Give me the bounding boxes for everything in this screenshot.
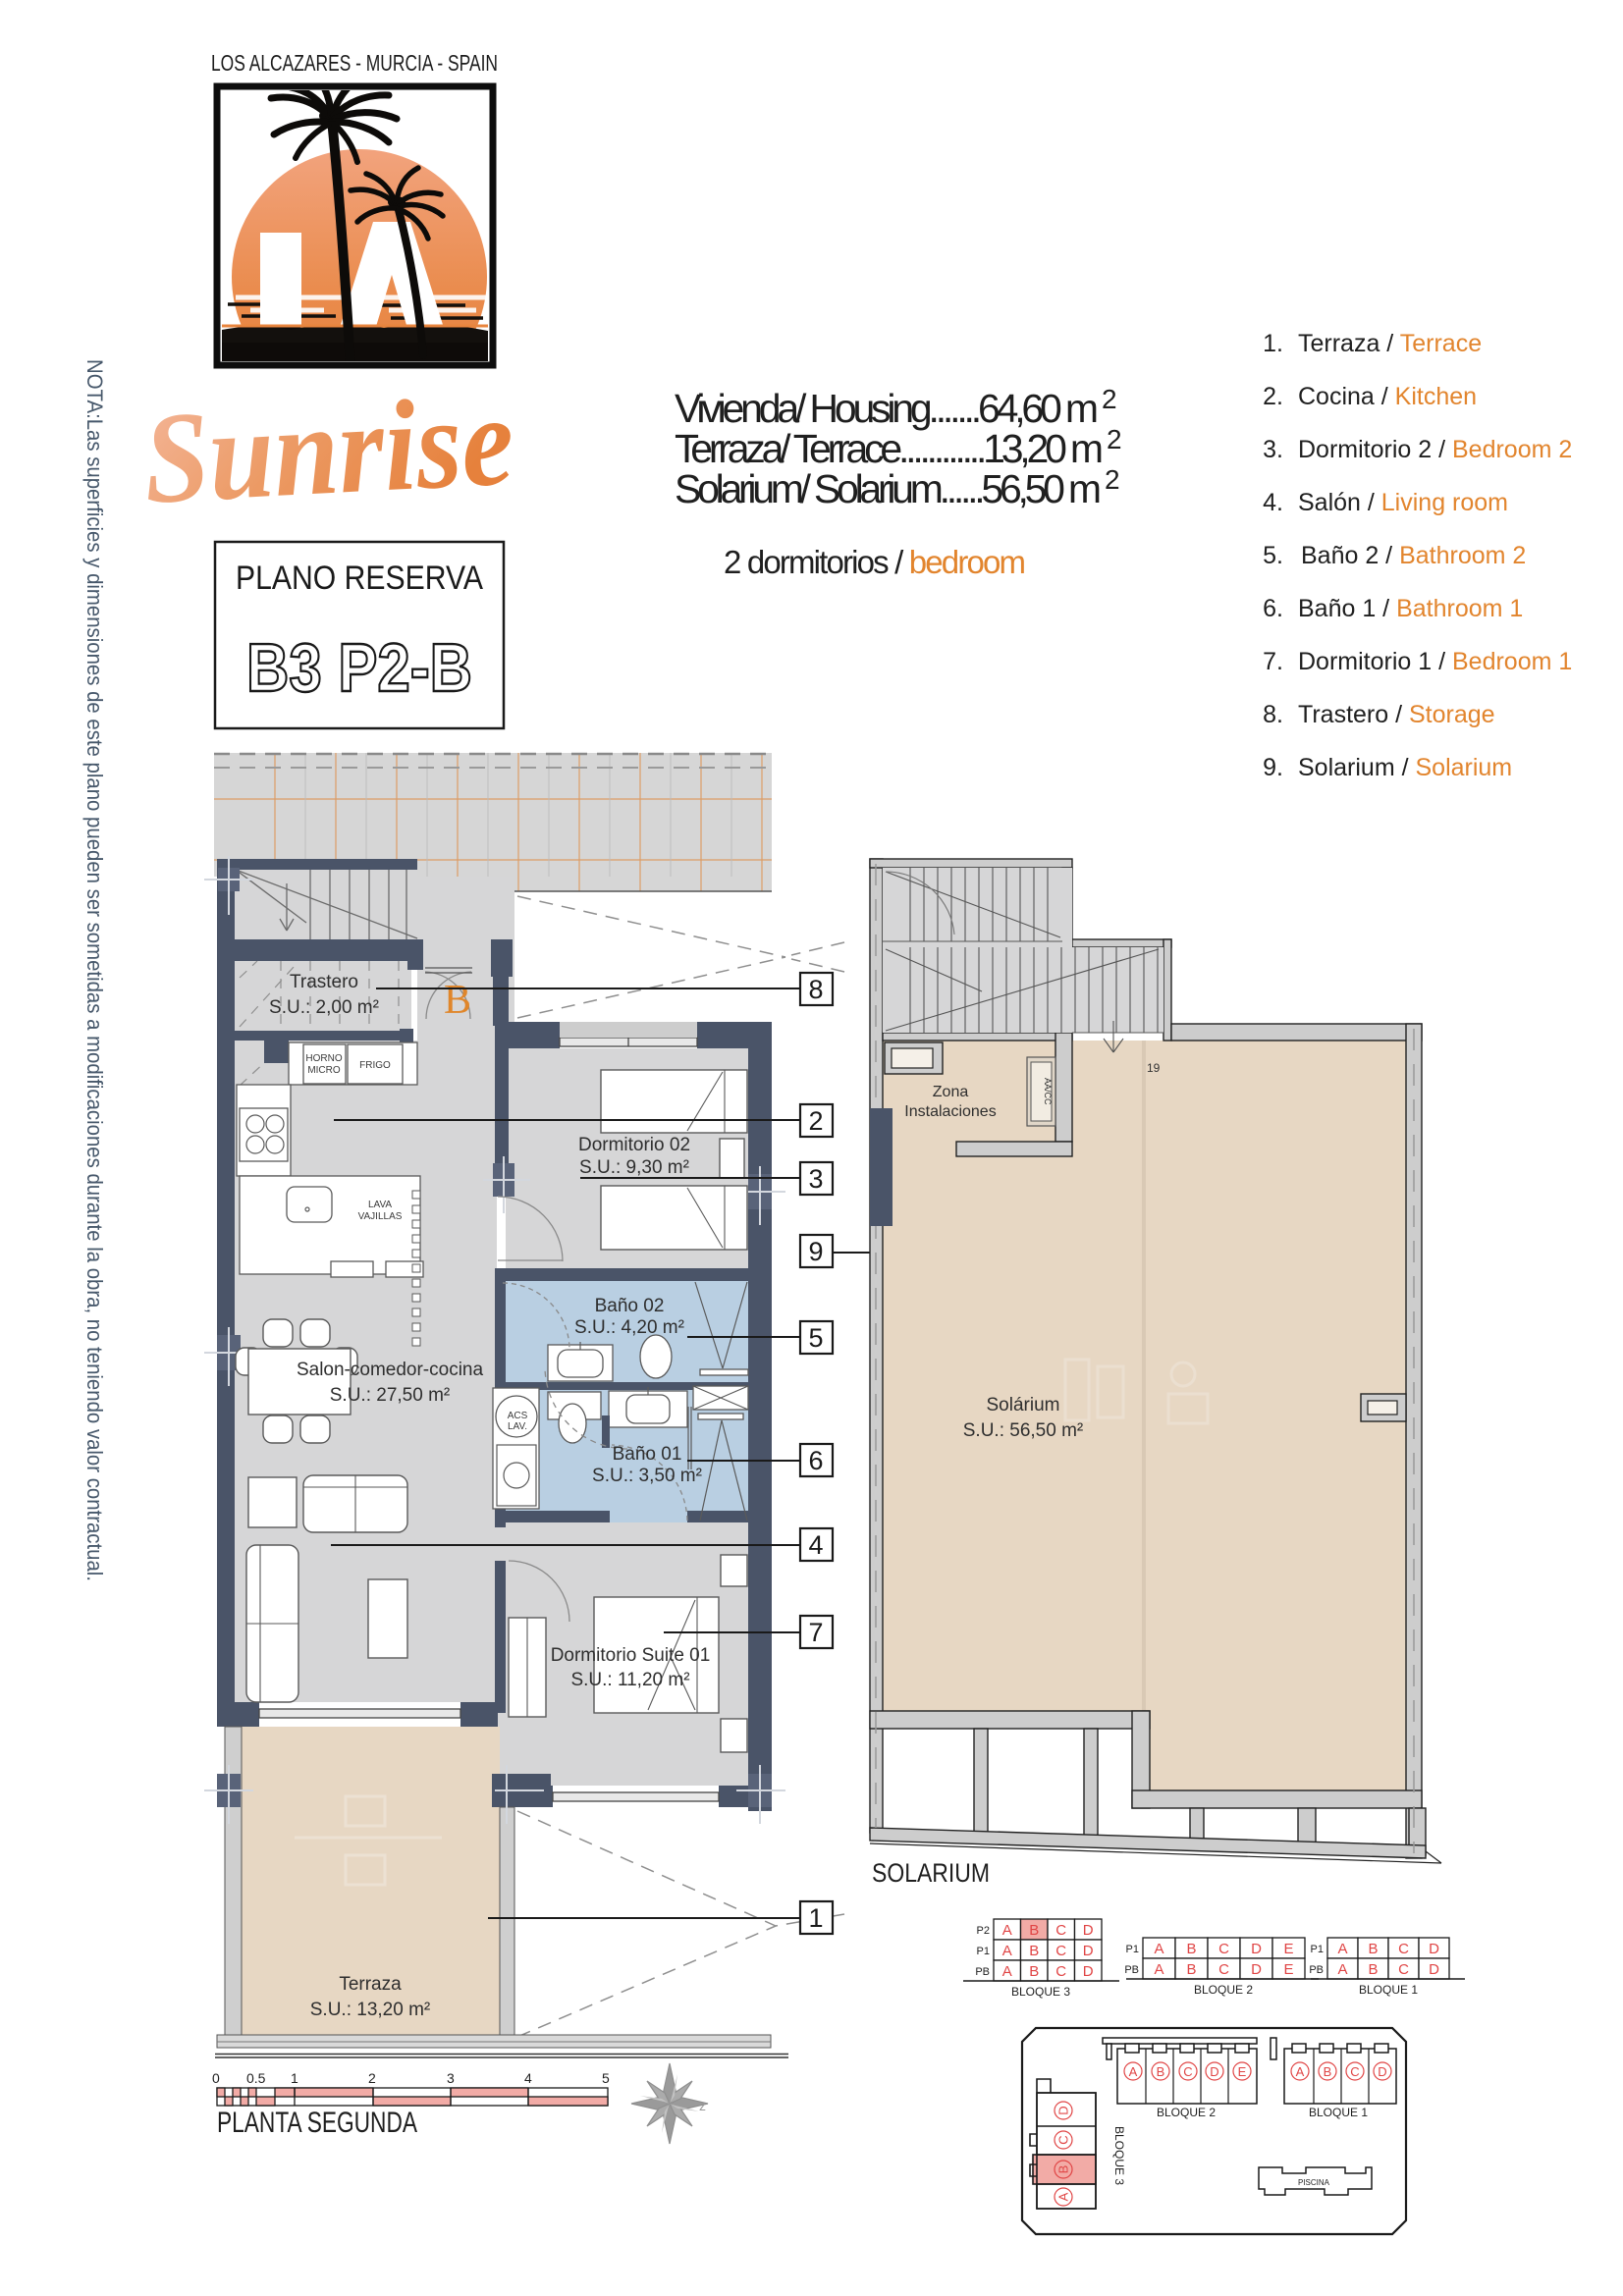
svg-text:4: 4 <box>808 1530 823 1560</box>
svg-text:Baño 1 / Bathroom 1: Baño 1 / Bathroom 1 <box>1298 595 1523 622</box>
svg-text:B3 P2-B: B3 P2-B <box>246 629 472 706</box>
svg-text:LAVA: LAVA <box>368 1200 392 1210</box>
svg-text:Sunrise: Sunrise <box>140 369 517 532</box>
svg-text:B: B <box>444 978 471 1023</box>
svg-text:PLANO RESERVA: PLANO RESERVA <box>236 560 483 597</box>
svg-text:Salon-comedor-cocina: Salon-comedor-cocina <box>297 1360 484 1380</box>
svg-text:C: C <box>1183 2064 1192 2079</box>
svg-text:B: B <box>1056 2165 1071 2174</box>
svg-text:Baño 02: Baño 02 <box>595 1296 665 1316</box>
svg-text:B: B <box>1029 1922 1039 1939</box>
svg-text:B: B <box>1186 1941 1196 1957</box>
svg-text:z: z <box>699 2098 706 2113</box>
svg-text:C: C <box>1055 1963 1066 1980</box>
svg-text:3: 3 <box>447 2070 455 2086</box>
svg-text:HORNO: HORNO <box>305 1053 342 1064</box>
svg-text:5: 5 <box>602 2070 610 2086</box>
svg-text:A: A <box>1337 1961 1347 1978</box>
svg-text:BLOQUE 1: BLOQUE 1 <box>1309 2106 1368 2119</box>
svg-text:3.: 3. <box>1263 436 1283 463</box>
svg-text:E: E <box>1238 2064 1247 2079</box>
svg-text:S.U.: 3,50 m²: S.U.: 3,50 m² <box>592 1466 702 1486</box>
svg-text:A: A <box>1129 2064 1138 2079</box>
svg-text:ACS: ACS <box>508 1411 528 1421</box>
svg-text:B: B <box>1324 2064 1332 2079</box>
svg-text:FRIGO: FRIGO <box>359 1060 391 1071</box>
svg-text:C: C <box>1055 1943 1066 1959</box>
svg-text:5.: 5. <box>1263 542 1283 569</box>
svg-text:PB: PB <box>1309 1964 1324 1976</box>
svg-text:0: 0 <box>212 2070 220 2086</box>
svg-text:MICRO: MICRO <box>307 1065 341 1076</box>
svg-text:S.U.: 2,00 m²: S.U.: 2,00 m² <box>269 997 379 1018</box>
svg-text:D: D <box>1083 1943 1094 1959</box>
svg-text:P2: P2 <box>977 1925 990 1937</box>
svg-text:B: B <box>1368 1941 1378 1957</box>
svg-text:B: B <box>1186 1961 1196 1978</box>
svg-text:Terraza/ Terrace............13: Terraza/ Terrace............13,20 m <box>675 426 1104 471</box>
svg-text:P1: P1 <box>1311 1944 1324 1955</box>
svg-text:Dormitorio 02: Dormitorio 02 <box>578 1135 690 1155</box>
svg-text:S.U.: 27,50 m²: S.U.: 27,50 m² <box>330 1385 451 1406</box>
svg-text:A: A <box>1154 1961 1163 1978</box>
svg-text:LOS ALCAZARES - MURCIA - SPAIN: LOS ALCAZARES - MURCIA - SPAIN <box>211 50 498 76</box>
svg-text:C: C <box>1218 1941 1229 1957</box>
svg-text:A: A <box>1002 1963 1012 1980</box>
svg-text:Trastero / Storage: Trastero / Storage <box>1298 701 1495 728</box>
svg-text:2 dormitorios / bedroom: 2 dormitorios / bedroom <box>724 544 1026 580</box>
svg-text:1: 1 <box>808 1903 823 1933</box>
svg-text:E: E <box>1283 1961 1293 1978</box>
svg-text:S.U.: 11,20 m²: S.U.: 11,20 m² <box>570 1670 689 1690</box>
svg-text:C: C <box>1055 1922 1066 1939</box>
svg-text:P1: P1 <box>977 1946 990 1957</box>
svg-text:2.: 2. <box>1263 383 1283 410</box>
svg-text:LAV.: LAV. <box>508 1421 527 1432</box>
svg-text:Dormitorio 1 / Bedroom 1: Dormitorio 1 / Bedroom 1 <box>1298 648 1572 675</box>
svg-text:Vivienda/ Housing.......64,60: Vivienda/ Housing.......64,60 m <box>675 386 1099 431</box>
svg-text:D: D <box>1210 2064 1218 2079</box>
svg-text:SOLARIUM: SOLARIUM <box>872 1858 990 1888</box>
svg-text:Instalaciones: Instalaciones <box>904 1103 996 1120</box>
svg-text:BLOQUE 3: BLOQUE 3 <box>1011 1985 1070 1999</box>
svg-text:A: A <box>1337 1941 1347 1957</box>
svg-text:7.: 7. <box>1263 648 1283 675</box>
svg-text:1.: 1. <box>1263 330 1283 357</box>
svg-text:Zona: Zona <box>933 1084 969 1100</box>
svg-text:2: 2 <box>1102 384 1117 414</box>
svg-text:C: C <box>1350 2064 1359 2079</box>
svg-text:A: A <box>1056 2192 1071 2201</box>
svg-text:Cocina / Kitchen: Cocina / Kitchen <box>1298 383 1477 410</box>
svg-text:Baño 2 / Bathroom 2: Baño 2 / Bathroom 2 <box>1301 542 1526 569</box>
svg-text:A: A <box>1002 1943 1012 1959</box>
svg-text:D: D <box>1056 2106 1071 2114</box>
svg-text:BLOQUE 3: BLOQUE 3 <box>1112 2126 1126 2185</box>
svg-text:B: B <box>1157 2064 1165 2079</box>
svg-text:7: 7 <box>808 1618 823 1647</box>
svg-text:8: 8 <box>808 975 823 1004</box>
svg-text:BLOQUE 2: BLOQUE 2 <box>1194 1983 1253 1997</box>
svg-text:4.: 4. <box>1263 489 1283 516</box>
svg-text:PISCINA: PISCINA <box>1298 2178 1330 2187</box>
svg-text:19: 19 <box>1147 1061 1161 1075</box>
svg-text:S.U.: 13,20 m²: S.U.: 13,20 m² <box>310 2000 431 2020</box>
svg-text:Terraza: Terraza <box>339 1974 402 1995</box>
svg-text:C: C <box>1398 1941 1409 1957</box>
svg-text:D: D <box>1251 1941 1262 1957</box>
svg-text:NOTA:Las superficies y dimensi: NOTA:Las superficies y dimensiones de es… <box>82 359 107 1581</box>
svg-text:PLANTA SEGUNDA: PLANTA SEGUNDA <box>217 2107 417 2139</box>
svg-text:Trastero: Trastero <box>290 972 358 992</box>
svg-text:S.U.: 56,50 m²: S.U.: 56,50 m² <box>963 1420 1084 1441</box>
svg-text:A: A <box>1154 1941 1163 1957</box>
svg-text:D: D <box>1083 1963 1094 1980</box>
svg-text:Dormitorio 2 / Bedroom 2: Dormitorio 2 / Bedroom 2 <box>1298 436 1572 463</box>
svg-text:6: 6 <box>808 1446 823 1475</box>
svg-text:Dormitorio Suite 01: Dormitorio Suite 01 <box>551 1645 711 1666</box>
svg-text:BLOQUE 1: BLOQUE 1 <box>1359 1983 1418 1997</box>
svg-text:A: A <box>1296 2064 1305 2079</box>
svg-text:0.5: 0.5 <box>246 2070 266 2086</box>
svg-text:2: 2 <box>1105 464 1120 495</box>
svg-text:D: D <box>1378 2064 1386 2079</box>
svg-text:9: 9 <box>808 1237 823 1266</box>
svg-text:6.: 6. <box>1263 595 1283 622</box>
svg-text:2: 2 <box>368 2070 376 2086</box>
svg-text:A: A <box>1002 1922 1012 1939</box>
svg-text:E: E <box>1283 1941 1293 1957</box>
svg-text:D: D <box>1429 1941 1439 1957</box>
svg-text:C: C <box>1218 1961 1229 1978</box>
svg-text:D: D <box>1251 1961 1262 1978</box>
svg-text:D: D <box>1429 1961 1439 1978</box>
svg-text:Salón / Living room: Salón / Living room <box>1298 489 1508 516</box>
svg-text:PB: PB <box>1124 1964 1139 1976</box>
svg-text:AA/CC: AA/CC <box>1043 1078 1053 1105</box>
svg-text:1: 1 <box>291 2070 298 2086</box>
svg-text:8.: 8. <box>1263 701 1283 728</box>
svg-text:Terraza / Terrace: Terraza / Terrace <box>1298 330 1482 357</box>
svg-text:P1: P1 <box>1126 1944 1139 1955</box>
svg-text:C: C <box>1056 2135 1071 2144</box>
svg-text:9.: 9. <box>1263 754 1283 781</box>
svg-text:4: 4 <box>524 2070 532 2086</box>
svg-text:S.U.: 4,20 m²: S.U.: 4,20 m² <box>574 1317 684 1338</box>
svg-text:2: 2 <box>808 1106 823 1136</box>
svg-text:S.U.: 9,30 m²: S.U.: 9,30 m² <box>579 1157 689 1178</box>
svg-text:BLOQUE 2: BLOQUE 2 <box>1157 2106 1216 2119</box>
svg-text:2: 2 <box>1107 424 1122 454</box>
svg-text:B: B <box>1368 1961 1378 1978</box>
svg-text:VAJILLAS: VAJILLAS <box>358 1211 403 1222</box>
svg-text:B: B <box>1029 1963 1039 1980</box>
svg-text:PB: PB <box>975 1966 990 1978</box>
svg-text:Solarium/ Solarium......56,50: Solarium/ Solarium......56,50 m <box>675 466 1102 511</box>
svg-text:C: C <box>1398 1961 1409 1978</box>
svg-text:Baño 01: Baño 01 <box>613 1444 682 1465</box>
svg-text:B: B <box>1029 1943 1039 1959</box>
svg-text:5: 5 <box>808 1323 823 1353</box>
svg-text:Solarium / Solarium: Solarium / Solarium <box>1298 754 1512 781</box>
svg-text:D: D <box>1083 1922 1094 1939</box>
svg-text:Solárium: Solárium <box>987 1395 1060 1415</box>
svg-text:3: 3 <box>808 1164 823 1194</box>
